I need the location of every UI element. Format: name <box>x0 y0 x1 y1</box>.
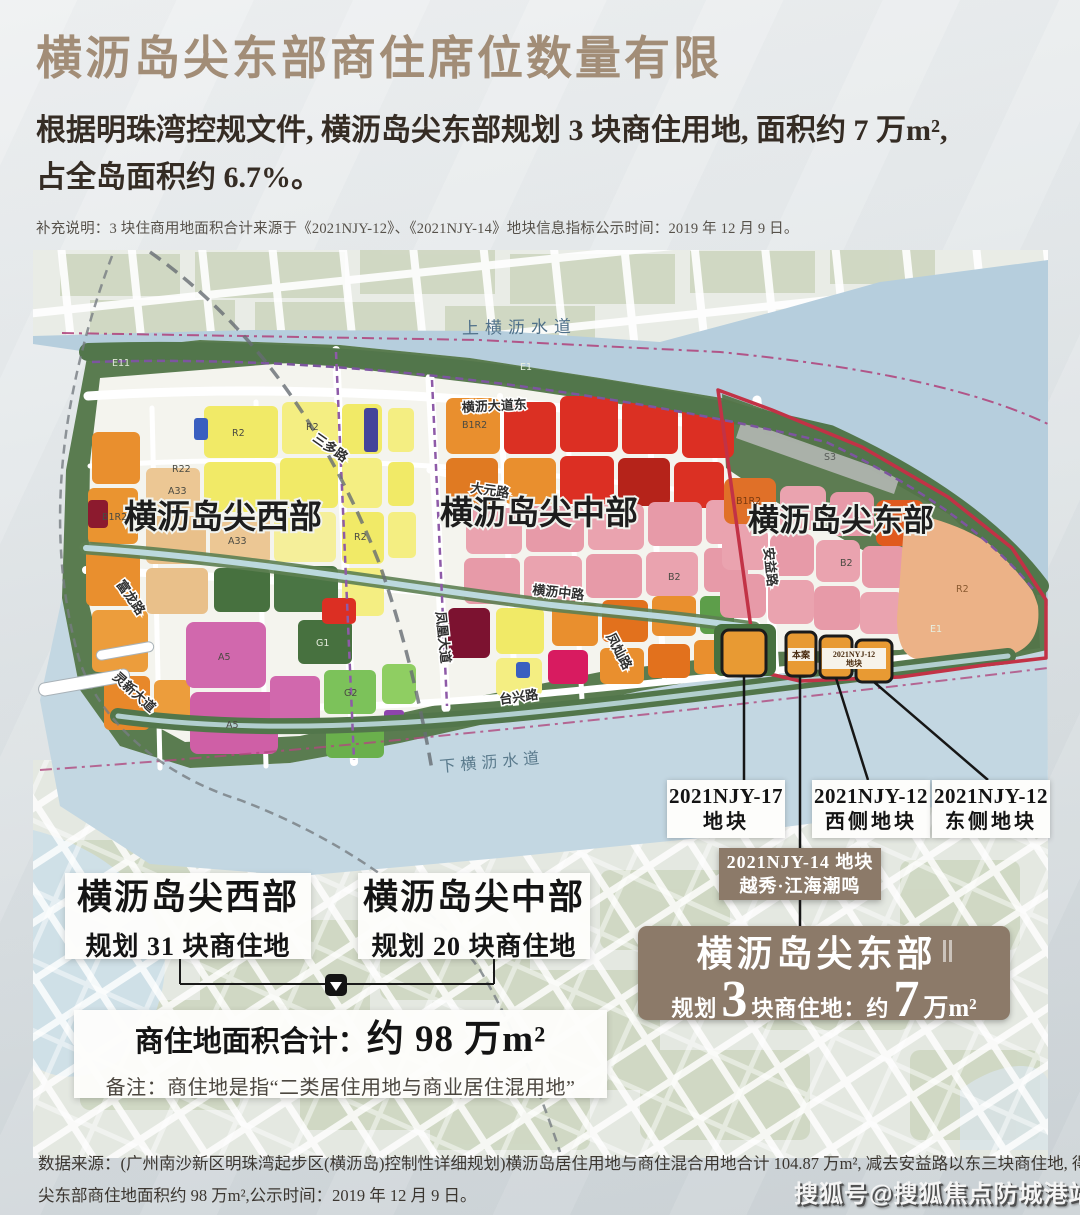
svg-text:G2: G2 <box>344 688 357 699</box>
svg-text:R22: R22 <box>172 464 191 475</box>
total-value: 约 98 万m² <box>367 1008 546 1062</box>
page-subtitle: 根据明珠湾控规文件, 横沥岛尖东部规划 3 块商住用地, 面积约 7 万m², … <box>36 108 1046 201</box>
summary-east-title: 横沥岛尖东部 <box>696 925 936 977</box>
east-num1: 3 <box>721 977 747 1024</box>
callout-njy12w-line2: 西侧地块 <box>825 810 917 834</box>
callout-njy12-west: 2021NJY-12 西侧地块 <box>812 780 930 838</box>
east-seg2: 块商住地：约 <box>751 991 889 1023</box>
east-seg1: 规划 <box>671 991 717 1023</box>
total-note: 备注：商住地是指“二类居住用地与商业居住混用地” <box>106 1071 576 1100</box>
callout-njy14-line1: 2021NJY-14 地块 <box>727 850 874 874</box>
svg-text:R2: R2 <box>306 422 319 433</box>
supplement-note: 补充说明：3 块住商用地面积合计来源于《2021NJY-12》、《2021NJY… <box>36 217 1046 238</box>
summary-middle-box: 横沥岛尖中部 规划 20 块商住地 <box>358 873 590 959</box>
callout-njy17-line1: 2021NJY-17 <box>669 784 783 809</box>
summary-west-sub: 规划 31 块商住地 <box>85 926 290 963</box>
callout-njy12e-line1: 2021NJY-12 <box>934 784 1048 809</box>
svg-text:R2: R2 <box>354 532 367 543</box>
callout-njy14-line2: 越秀·江海潮鸣 <box>739 874 860 898</box>
region-east-label: 横沥岛尖东部 <box>748 503 934 538</box>
svg-text:B1R2: B1R2 <box>462 420 487 431</box>
summary-west-title: 横沥岛尖西部 <box>77 869 299 920</box>
plot-tag-njy12-2: 地块 <box>846 658 863 668</box>
callout-njy17: 2021NJY-17 地块 <box>667 780 785 838</box>
subtitle-line1: 根据明珠湾控规文件, 横沥岛尖东部规划 3 块商住用地, 面积约 7 万m², <box>36 108 1046 155</box>
callout-njy12e-line2: 东侧地块 <box>945 810 1037 834</box>
svg-text:E1: E1 <box>520 362 532 373</box>
infographic-page: 本案 2021NYJ-12 地块 上横沥水道 下横沥水道 横沥岛尖西部 横沥岛尖… <box>0 0 1080 1215</box>
plot-tag-benan: 本案 <box>792 649 811 660</box>
svg-text:B1R2: B1R2 <box>736 496 761 507</box>
svg-text:R2: R2 <box>232 428 245 439</box>
summary-west-box: 横沥岛尖西部 规划 31 块商住地 <box>65 873 311 959</box>
seal-marks <box>943 940 952 962</box>
region-middle-label: 横沥岛尖中部 <box>440 495 638 532</box>
callout-njy17-line2: 地块 <box>703 810 749 834</box>
header: 横沥岛尖东部商住席位数量有限 根据明珠湾控规文件, 横沥岛尖东部规划 3 块商住… <box>36 22 1046 238</box>
waterway-top-label: 上横沥水道 <box>462 317 577 338</box>
svg-text:S3: S3 <box>824 452 836 463</box>
summary-total-box: 商住地面积合计： 约 98 万m² 备注：商住地是指“二类居住用地与商业居住混用… <box>74 1010 607 1098</box>
total-label: 商住地面积合计： <box>135 1018 367 1060</box>
page-title: 横沥岛尖东部商住席位数量有限 <box>36 22 1046 88</box>
svg-text:B2: B2 <box>840 558 853 569</box>
svg-text:B1R2: B1R2 <box>102 512 127 523</box>
summary-middle-sub: 规划 20 块商住地 <box>371 926 576 963</box>
callout-njy12w-line1: 2021NJY-12 <box>814 784 928 809</box>
region-west-label: 横沥岛尖西部 <box>124 499 322 536</box>
svg-text:A5: A5 <box>218 652 231 663</box>
svg-text:B2: B2 <box>668 572 681 583</box>
subtitle-line2: 占全岛面积约 6.7%。 <box>36 155 1046 202</box>
east-num2: 7 <box>893 977 919 1024</box>
svg-text:A33: A33 <box>168 486 187 497</box>
svg-text:E11: E11 <box>112 358 130 369</box>
svg-text:R2: R2 <box>956 584 969 595</box>
callout-njy14: 2021NJY-14 地块 越秀·江海潮鸣 <box>719 848 881 900</box>
svg-text:A33: A33 <box>228 536 247 547</box>
east-seg3: 万m² <box>923 988 976 1024</box>
summary-east-box: 横沥岛尖东部 规划 3 块商住地：约 7 万m² <box>638 926 1010 1020</box>
callout-njy12-east: 2021NJY-12 东侧地块 <box>932 780 1050 838</box>
summary-middle-title: 横沥岛尖中部 <box>363 869 585 920</box>
svg-text:A5: A5 <box>226 720 239 731</box>
plot-tag-njy12-1: 2021NYJ-12 <box>833 650 875 659</box>
svg-text:E1: E1 <box>930 624 942 635</box>
watermark: 搜狐号@搜狐焦点防城港站 <box>794 1174 1080 1209</box>
svg-text:G1: G1 <box>316 638 329 649</box>
